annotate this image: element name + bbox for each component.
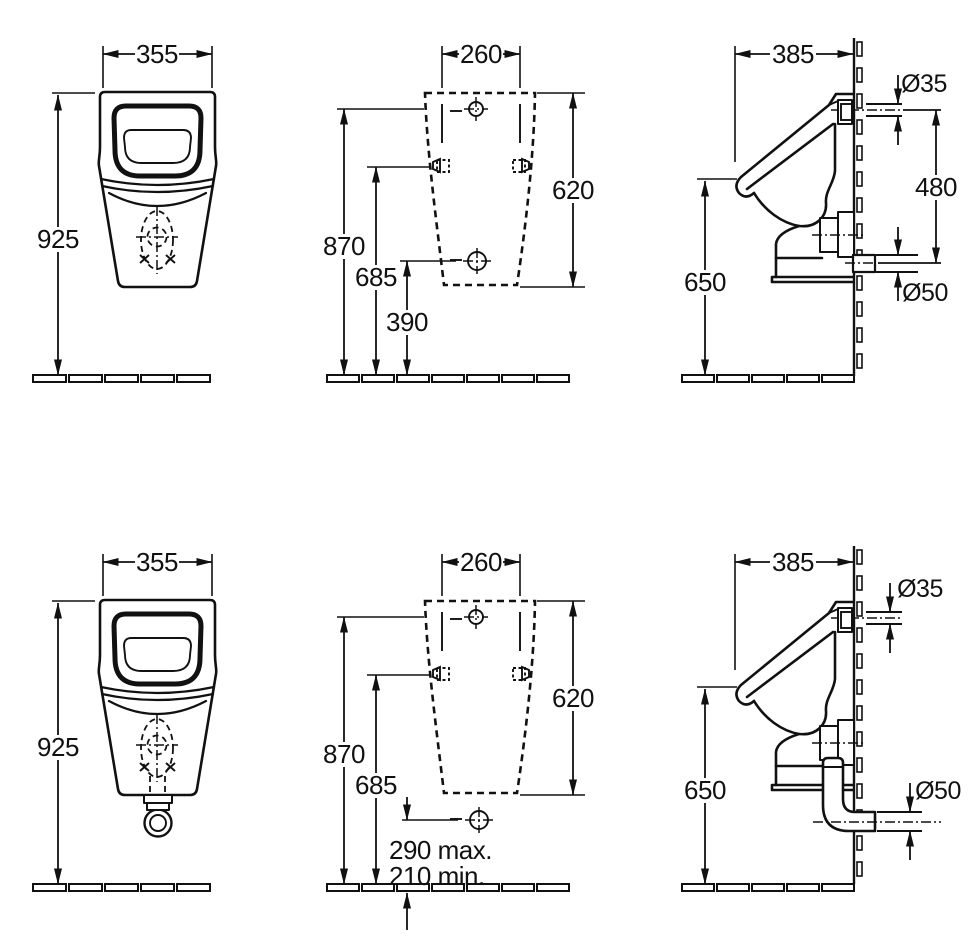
floor-hatch (327, 375, 569, 382)
urinal-dimension-drawing: 355 925 260 620 870 685 390 (0, 0, 980, 938)
rear-view-top: 260 620 870 685 390 (322, 39, 595, 382)
front-view-bottom: 355 925 (33, 547, 216, 891)
wall-section (854, 546, 862, 884)
front-view-top: 355 925 (33, 39, 216, 382)
floor-hatch (33, 375, 210, 382)
dim-height-label: 925 (37, 732, 79, 762)
dim-depth-label: 385 (772, 39, 814, 69)
dim-connection-spacing-label: 480 (915, 172, 957, 202)
dim-depth-label: 385 (772, 547, 814, 577)
dim-outline-height-label: 620 (552, 175, 594, 205)
side-view-bottom: 385 Ø35 Ø50 650 (682, 546, 961, 891)
floor-hatch (682, 375, 854, 382)
dim-outline-height-label: 620 (552, 683, 594, 713)
dim-inlet-height-label: 870 (323, 739, 365, 769)
dim-rim-height-label: 650 (684, 775, 726, 805)
dim-outlet-min-label: 210 min. (389, 861, 485, 891)
floor-hatch (682, 884, 854, 891)
urinal-front-drawing (99, 92, 217, 287)
dim-width-label: 355 (136, 547, 178, 577)
dim-fixing-height-label: 685 (355, 770, 397, 800)
technical-drawing-page: 355 925 260 620 870 685 390 (0, 0, 980, 938)
dim-outlet-diameter-label: Ø50 (902, 279, 948, 307)
dim-height-label: 925 (37, 224, 79, 254)
dim-rim-height-label: 650 (684, 267, 726, 297)
dim-inlet-diameter-label: Ø35 (901, 70, 947, 98)
dim-outlet-diameter-label: Ø50 (915, 777, 961, 805)
mounting-outline-drawing (425, 93, 535, 285)
urinal-side-drawing (736, 94, 903, 282)
wall-section (854, 38, 862, 376)
dim-fixing-height-label: 685 (355, 262, 397, 292)
dim-inlet-diameter-label: Ø35 (897, 575, 943, 603)
side-view-top: 385 Ø35 480 Ø50 650 (682, 38, 959, 382)
dim-width-label: 355 (136, 39, 178, 69)
urinal-side-drawing (736, 602, 903, 790)
urinal-front-drawing (99, 600, 217, 795)
dim-outlet-height-label: 390 (386, 307, 428, 337)
floor-hatch (33, 884, 210, 891)
mounting-outline-drawing (425, 601, 535, 793)
outlet-hole-symbol (450, 248, 491, 274)
dim-width-label: 260 (460, 547, 502, 577)
dim-width-label: 260 (460, 39, 502, 69)
dim-inlet-height-label: 870 (323, 231, 365, 261)
rear-view-bottom: 260 620 870 685 290 max. 210 min. (322, 547, 595, 930)
